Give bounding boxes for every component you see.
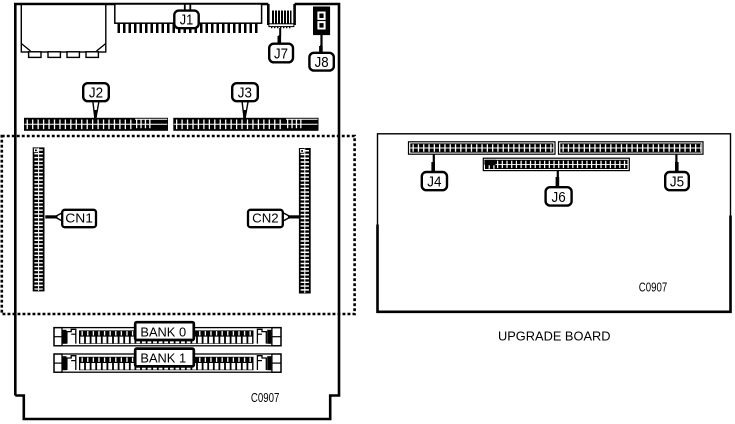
svg-text:J2: J2	[89, 85, 103, 101]
svg-text:J6: J6	[552, 190, 566, 206]
svg-text:J1: J1	[180, 12, 194, 28]
svg-text:CN2: CN2	[252, 211, 279, 226]
svg-text:C0907: C0907	[639, 280, 668, 295]
svg-text:UPGRADE BOARD: UPGRADE BOARD	[498, 328, 611, 343]
svg-text:J4: J4	[427, 175, 441, 191]
svg-text:J7: J7	[274, 46, 288, 62]
svg-text:J8: J8	[315, 55, 329, 71]
svg-text:J5: J5	[670, 175, 684, 191]
svg-text:BANK 1: BANK 1	[140, 351, 186, 366]
svg-text:J3: J3	[238, 85, 252, 101]
svg-text:BANK 0: BANK 0	[140, 324, 186, 339]
svg-text:C0907: C0907	[251, 390, 280, 405]
svg-text:CN1: CN1	[65, 211, 93, 226]
